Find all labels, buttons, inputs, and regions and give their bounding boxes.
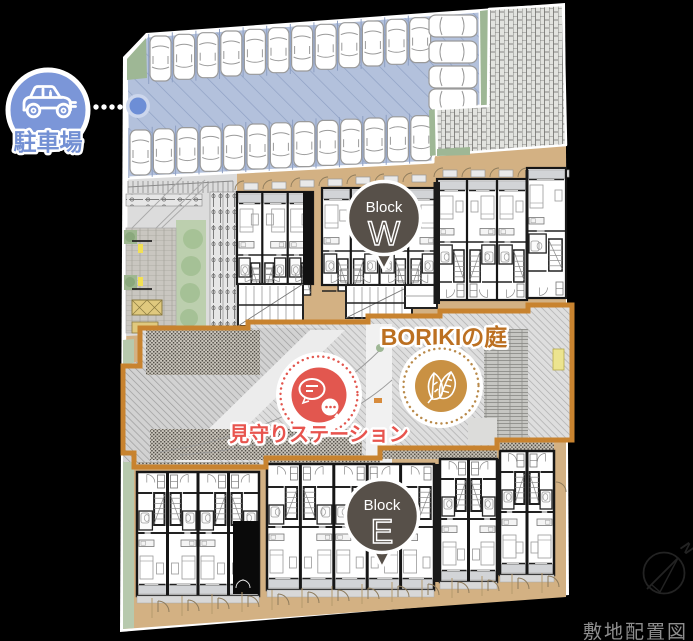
svg-text:敷地配置図: 敷地配置図 bbox=[583, 621, 688, 641]
svg-text:駐車場: 駐車場 bbox=[14, 129, 83, 155]
svg-text:W: W bbox=[368, 215, 400, 253]
svg-text:E: E bbox=[371, 513, 394, 551]
svg-text:見守りステーション: 見守りステーション bbox=[229, 422, 409, 446]
svg-text:Block: Block bbox=[364, 497, 401, 514]
svg-text:Block: Block bbox=[366, 199, 403, 216]
